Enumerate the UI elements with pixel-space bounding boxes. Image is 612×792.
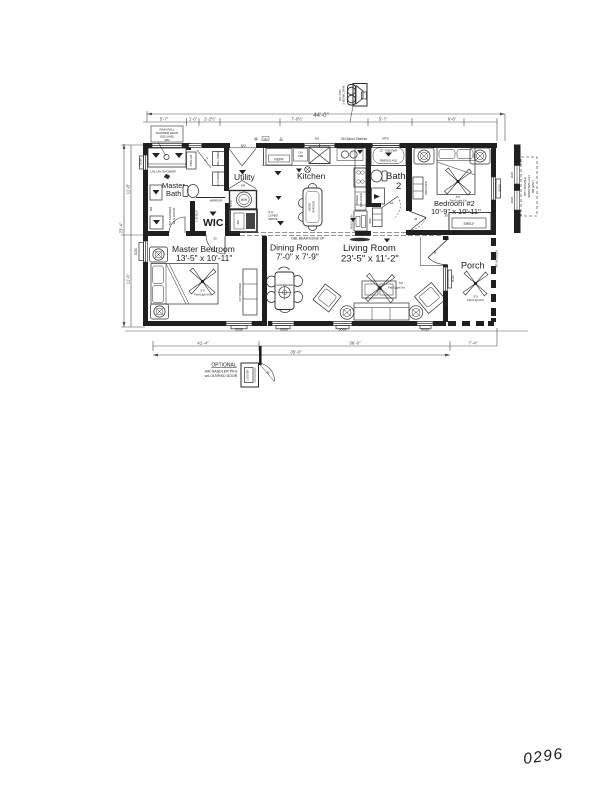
- svg-text:48C: 48C: [164, 138, 170, 142]
- svg-text:OPTIONAL: OPTIONAL: [211, 363, 237, 369]
- svg-text:5/1-4: 5/1-4: [229, 200, 233, 207]
- svg-text:30: 30: [444, 214, 448, 218]
- svg-text:6'-6": 6'-6": [448, 117, 457, 122]
- svg-text:Fan/Light Kit: Fan/Light Kit: [450, 199, 467, 203]
- svg-text:GFI: GFI: [263, 137, 268, 141]
- svg-text:16x22 LAUN: 16x22 LAUN: [350, 215, 354, 230]
- svg-text:30: 30: [433, 250, 437, 254]
- svg-text:1'-6": 1'-6": [189, 117, 198, 122]
- svg-text:23'-4": 23'-4": [119, 222, 124, 233]
- svg-text:DRESSER: DRESSER: [424, 181, 428, 195]
- svg-text:5'-7": 5'-7": [160, 117, 169, 122]
- svg-text:Kitchen: Kitchen: [297, 171, 326, 181]
- svg-text:REFR: REFR: [274, 158, 284, 162]
- svg-text:2: 2: [396, 181, 401, 192]
- svg-text:32" TUB/SWR: 32" TUB/SWR: [380, 149, 398, 153]
- svg-text:CAB: CAB: [298, 154, 304, 158]
- svg-text:SHELF: SHELF: [464, 222, 475, 226]
- svg-text:4/0 SCREEN: 4/0 SCREEN: [495, 250, 499, 268]
- svg-text:Porch: Porch: [461, 261, 485, 271]
- svg-text:3030: 3030: [451, 275, 455, 283]
- svg-text:11'-8": 11'-8": [126, 183, 131, 194]
- svg-text:3050: 3050: [235, 328, 243, 332]
- svg-text:Fan/Light Kit: Fan/Light Kit: [467, 298, 484, 302]
- svg-text:AIR HANDLER PKG: AIR HANDLER PKG: [205, 370, 238, 374]
- svg-text:LOUVER: LOUVER: [246, 370, 250, 381]
- svg-text:7'-0" x 7'-9": 7'-0" x 7'-9": [276, 252, 319, 262]
- svg-text:24: 24: [390, 201, 394, 205]
- svg-text:7'-4": 7'-4": [469, 341, 478, 346]
- svg-text:10'-9" x 10'-11": 10'-9" x 10'-11": [431, 207, 481, 216]
- svg-text:DBL BEAM EDGE OF: DBL BEAM EDGE OF: [291, 237, 324, 241]
- svg-text:A/H: A/H: [236, 220, 240, 225]
- svg-text:FIBERGLASS: FIBERGLASS: [380, 159, 398, 163]
- svg-text:41'-4": 41'-4": [197, 341, 209, 346]
- svg-text:DBS LIN: DBS LIN: [189, 155, 193, 167]
- svg-text:BB (EST): BB (EST): [531, 180, 535, 193]
- svg-text:Utility: Utility: [234, 172, 256, 182]
- svg-text:CHANDELIER: CHANDELIER: [276, 283, 293, 287]
- svg-text:MIRROR: MIRROR: [210, 199, 223, 203]
- svg-text:26: 26: [414, 217, 418, 221]
- svg-text:36'-0": 36'-0": [349, 341, 361, 346]
- svg-text:STATION: STATION: [312, 201, 316, 213]
- svg-text:42" DRESSER: 42" DRESSER: [238, 283, 242, 301]
- svg-text:TWN 2x10x14 BAL ROOF WALL: TWN 2x10x14 BAL ROOF WALL: [262, 267, 266, 305]
- svg-text:Living Room: Living Room: [343, 243, 396, 254]
- svg-text:W/H: W/H: [241, 198, 248, 202]
- svg-text:1-SHELF: 1-SHELF: [195, 210, 199, 223]
- svg-text:23'-5" x 11'-2": 23'-5" x 11'-2": [341, 254, 399, 265]
- svg-text:7'-6½": 7'-6½": [291, 117, 303, 122]
- svg-text:2-BOWL SINK: 2-BOWL SINK: [342, 85, 346, 104]
- svg-text:2'-2½": 2'-2½": [204, 117, 216, 122]
- svg-text:11'-6": 11'-6": [126, 273, 131, 284]
- svg-text:3030: 3030: [139, 158, 143, 166]
- svg-text:w/LOUVRED DOOR: w/LOUVRED DOOR: [205, 374, 238, 378]
- svg-text:Fan/Light Kit: Fan/Light Kit: [194, 293, 211, 297]
- svg-text:W/D: W/D: [368, 218, 372, 223]
- svg-text:35'-0": 35'-0": [290, 350, 302, 355]
- svg-text:6/0: 6/0: [315, 137, 320, 141]
- svg-text:WIC: WIC: [203, 217, 224, 229]
- svg-text:Bath: Bath: [166, 189, 181, 198]
- svg-text:3060: 3060: [280, 328, 288, 332]
- svg-text:3060: 3060: [339, 328, 347, 332]
- svg-text:ON Wood Shelves: ON Wood Shelves: [341, 137, 368, 141]
- svg-text:5'0: 5'0: [399, 281, 403, 285]
- svg-text:30: 30: [213, 237, 217, 241]
- svg-text:ABOVE: ABOVE: [268, 217, 278, 221]
- svg-text:3/0: 3/0: [241, 144, 246, 148]
- svg-text:5'-7": 5'-7": [379, 117, 388, 122]
- svg-text:13'-5" x 10'-11": 13'-5" x 10'-11": [176, 253, 232, 263]
- svg-text:3030: 3030: [510, 171, 514, 178]
- svg-text:DR+ PREP: DR+ PREP: [216, 151, 220, 166]
- svg-text:6/9: 6/9: [241, 184, 246, 188]
- svg-text:3030: 3030: [498, 184, 502, 192]
- svg-text:44'-0": 44'-0": [313, 113, 328, 119]
- svg-text:LIN.LAV SHOWER: LIN.LAV SHOWER: [151, 170, 177, 174]
- svg-text:AUX PREP: AUX PREP: [216, 171, 220, 186]
- svg-text:MTD: MTD: [382, 137, 389, 141]
- svg-text:Fan/Light Kit: Fan/Light Kit: [388, 286, 405, 290]
- svg-text:RB: RB: [149, 207, 153, 211]
- svg-text:OH: OH: [299, 151, 303, 155]
- svg-text:3030: 3030: [510, 196, 514, 203]
- svg-text:3050: 3050: [421, 328, 429, 332]
- svg-text:3030: 3030: [134, 248, 138, 256]
